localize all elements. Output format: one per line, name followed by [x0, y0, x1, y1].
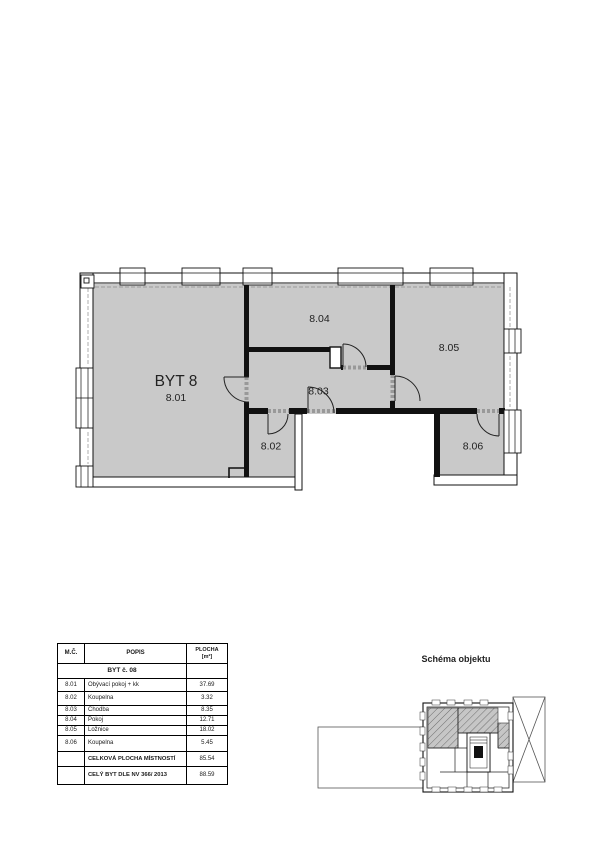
room-label-802: 8.02: [261, 441, 282, 453]
apartment-title-label: BYT 8: [155, 373, 198, 390]
row-plocha: 3.32: [187, 692, 227, 705]
row-popis: Koupelna: [85, 736, 187, 751]
window-right-2: [504, 410, 521, 453]
header-plocha-line2: [m²]: [202, 654, 212, 660]
header-plocha: PLOCHA [m²]: [187, 644, 227, 663]
row-popis: Koupelna: [85, 692, 187, 705]
row-id: 8.06: [58, 736, 85, 751]
wall-corridor-bottom-2: [289, 408, 307, 414]
wall-notch-left: [295, 414, 302, 490]
table-total-row: CELKOVÁ PLOCHA MÍSTNOSTÍ 85.54: [58, 752, 227, 767]
window-top-1: [120, 268, 145, 285]
wall-801-left-upper: [244, 283, 249, 377]
window-left-2: [76, 466, 93, 487]
total-label: CELKOVÁ PLOCHA MÍSTNOSTÍ: [85, 752, 187, 766]
row-popis: Ložnice: [85, 726, 187, 735]
row-id: 8.01: [58, 679, 85, 691]
window-left-1: [76, 368, 93, 428]
window-top-5: [430, 268, 473, 285]
table-row: 8.03 Chodba 8.35: [58, 706, 227, 716]
header-popis: POPIS: [85, 644, 187, 663]
row-id: 8.04: [58, 716, 85, 725]
window-top-2: [182, 268, 220, 285]
header-mc: M.Č.: [58, 644, 85, 663]
room-label-804: 8.04: [309, 313, 330, 325]
wall-804-805-divider: [390, 283, 395, 375]
row-id: 8.02: [58, 692, 85, 705]
row-plocha: 12.71: [187, 716, 227, 725]
subheader-empty-cell: [187, 664, 227, 678]
wall-corridor-bottom-3: [336, 408, 477, 414]
table-row: 8.05 Ložnice 18.02: [58, 726, 227, 736]
room-label-803: 8.03: [308, 386, 329, 398]
window-right-1: [504, 329, 521, 353]
schema-title: Schéma objektu: [386, 654, 526, 664]
table-row: 8.06 Koupelna 5.45: [58, 736, 227, 752]
wall-bottom-left: [80, 477, 302, 487]
total-value: 85.54: [187, 752, 227, 766]
total-empty-cell: [58, 767, 85, 784]
wall-corridor-bottom-1: [244, 408, 268, 414]
room-label-806: 8.06: [463, 441, 484, 453]
corner-detail: [81, 275, 94, 288]
total-value: 88.59: [187, 767, 227, 784]
row-popis: Obývací pokoj + kk: [85, 679, 187, 691]
total-empty-cell: [58, 752, 85, 766]
subheader-label: BYT č. 08: [58, 664, 187, 678]
area-table: M.Č. POPIS PLOCHA [m²] BYT č. 08 8.01 Ob…: [57, 643, 228, 785]
table-row: 8.02 Koupelna 3.32: [58, 692, 227, 706]
duct-pillar: [330, 347, 341, 368]
row-popis: Chodba: [85, 706, 187, 715]
row-plocha: 5.45: [187, 736, 227, 751]
row-id: 8.05: [58, 726, 85, 735]
row-plocha: 37.69: [187, 679, 227, 691]
floorplan-page: { "plan": { "apartment_title": "BYT 8", …: [0, 0, 600, 849]
row-popis: Pokoj: [85, 716, 187, 725]
room-label-801: 8.01: [166, 392, 187, 404]
building-schema: [305, 688, 550, 805]
total-label: CELÝ BYT DLE NV 366/ 2013: [85, 767, 187, 784]
table-row: 8.01 Obývací pokoj + kk 37.69: [58, 679, 227, 692]
window-top-3: [243, 268, 272, 285]
wall-804-bottom-left: [244, 347, 330, 352]
floor-plan: BYT 8 8.01 8.04 8.05 8.03 8.02 8.06: [60, 255, 540, 505]
window-top-4: [338, 268, 403, 285]
row-plocha: 18.02: [187, 726, 227, 735]
wall-804-bottom-right: [367, 365, 390, 370]
row-plocha: 8.35: [187, 706, 227, 715]
wall-806-left: [434, 414, 440, 477]
schema-crossed-area: [513, 697, 545, 782]
schema-terrace-outline: [318, 727, 423, 788]
wall-bottom-right: [434, 475, 517, 485]
room-label-805: 8.05: [439, 342, 460, 354]
row-id: 8.03: [58, 706, 85, 715]
table-subheader-row: BYT č. 08: [58, 664, 227, 679]
table-total-row: CELÝ BYT DLE NV 366/ 2013 88.59: [58, 767, 227, 784]
schema-stair-core: [467, 733, 490, 772]
table-header-row: M.Č. POPIS PLOCHA [m²]: [58, 644, 227, 664]
table-row: 8.04 Pokoj 12.71: [58, 716, 227, 726]
